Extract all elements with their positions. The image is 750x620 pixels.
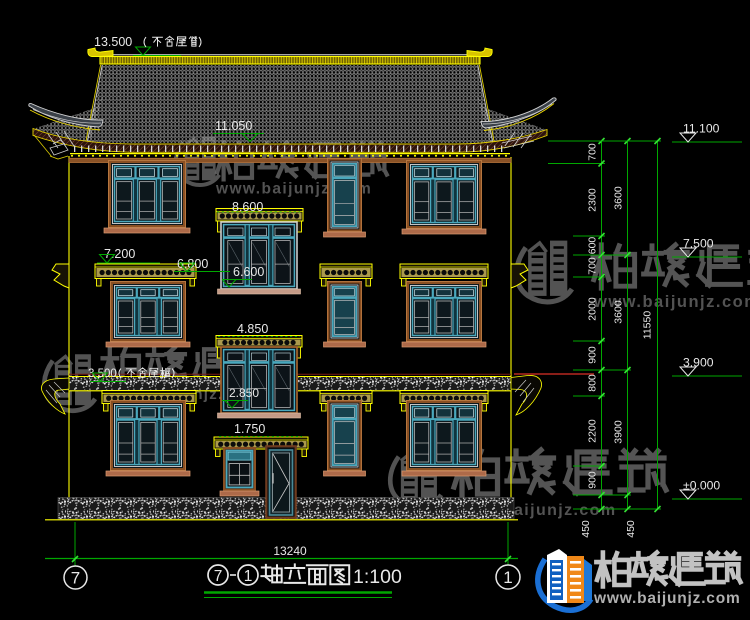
svg-text:www.baijunjz.com: www.baijunjz.com <box>593 590 741 607</box>
svg-text:13.500: 13.500 <box>94 35 132 49</box>
svg-text:7: 7 <box>71 569 80 588</box>
svg-text:450: 450 <box>580 520 592 538</box>
svg-text:7: 7 <box>214 568 223 585</box>
svg-text:700: 700 <box>587 257 599 275</box>
svg-text:13240: 13240 <box>273 544 307 558</box>
svg-text:450: 450 <box>625 520 637 538</box>
svg-text:1:100: 1:100 <box>353 566 402 588</box>
svg-text:2300: 2300 <box>587 188 599 212</box>
svg-text:6.800: 6.800 <box>177 257 208 271</box>
svg-text:3600: 3600 <box>613 186 625 210</box>
svg-text:11.050: 11.050 <box>215 119 252 133</box>
svg-text:1.750: 1.750 <box>234 422 265 436</box>
svg-text:4.850: 4.850 <box>237 322 268 336</box>
svg-text:2200: 2200 <box>587 419 599 443</box>
svg-text:900: 900 <box>587 346 599 364</box>
svg-text:800: 800 <box>587 374 599 392</box>
svg-text:2.850: 2.850 <box>229 386 259 400</box>
svg-text:600: 600 <box>587 237 599 255</box>
svg-text:11550: 11550 <box>642 311 654 340</box>
svg-text:2000: 2000 <box>587 297 599 321</box>
svg-text:900: 900 <box>587 471 599 489</box>
svg-text:1: 1 <box>244 568 253 585</box>
svg-text:3900: 3900 <box>613 420 625 444</box>
svg-text:700: 700 <box>587 143 599 161</box>
svg-text:1: 1 <box>503 568 512 587</box>
svg-text:6.600: 6.600 <box>233 265 264 279</box>
svg-text:3600: 3600 <box>613 300 625 324</box>
